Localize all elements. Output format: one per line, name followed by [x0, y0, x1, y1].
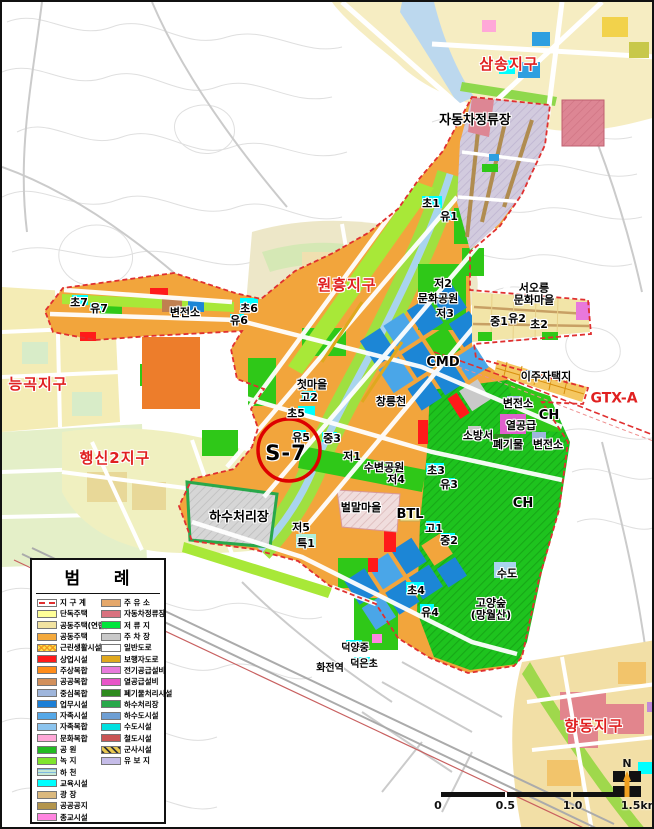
legend-item-label: 교육시설: [60, 778, 88, 789]
legend-item-label: 공 원: [60, 744, 76, 755]
legend-item-label: 하 천: [60, 767, 76, 778]
legend-item: 수도시설: [101, 721, 165, 732]
legend-swatch: [37, 802, 57, 810]
legend-item: 녹 지: [37, 755, 99, 766]
sewage-plant-area: [187, 482, 277, 547]
legend-item: 지 구 계: [37, 597, 99, 608]
legend-item-label: 주 유 소: [124, 597, 150, 608]
legend-swatch: [37, 633, 57, 641]
legend-swatch: [101, 734, 121, 742]
legend-item-label: 상업시설: [60, 654, 88, 665]
legend-item-label: 공공공지: [60, 800, 88, 811]
legend-item: 주 차 장: [101, 631, 165, 642]
legend-swatch: [101, 655, 121, 663]
legend-item-label: 주 차 장: [124, 631, 150, 642]
legend-column-left: 지 구 계단독주택공동주택(연립)공동주택근린생활시설상업시설주상복합공공복합중…: [37, 597, 99, 823]
legend-item-label: 광 장: [60, 789, 76, 800]
legend-swatch: [101, 746, 121, 754]
legend-item-label: 열공급설비: [124, 676, 159, 687]
legend-item-label: 일반도로: [124, 642, 152, 653]
legend-item: 보행자도로: [101, 653, 165, 664]
legend-swatch: [101, 700, 121, 708]
legend-item: 자족복합: [37, 721, 99, 732]
legend-item: 자동차정류장: [101, 608, 165, 619]
legend-item: 폐기물처리시설: [101, 687, 165, 698]
legend-swatch: [101, 757, 121, 765]
legend-swatch: [37, 700, 57, 708]
legend-title: 범 례: [32, 560, 164, 589]
legend-swatch: [101, 666, 121, 674]
legend-item-label: 유 보 지: [124, 755, 150, 766]
legend-item-label: 보행자도로: [124, 654, 159, 665]
legend-item: 철도시설: [101, 733, 165, 744]
legend-item-label: 하수처리장: [124, 699, 159, 710]
legend-item: 공동주택: [37, 631, 99, 642]
legend-item-label: 지 구 계: [60, 597, 86, 608]
plan-map-figure: 삼송지구원흥지구능곡지구행신2지구향동지구GTX-A자동차정류장CMD하수처리장…: [0, 0, 654, 829]
scale-tick-label: 0: [434, 799, 442, 812]
legend-item-label: 저 류 지: [124, 620, 150, 631]
legend-item-label: 단독주택: [60, 608, 88, 619]
legend-item: 일반도로: [101, 642, 165, 653]
legend-item: 공공공지: [37, 800, 99, 811]
scale-tick-label: 1.0: [563, 799, 583, 812]
legend-item: 근린생활시설: [37, 642, 99, 653]
legend-item: 광 장: [37, 789, 99, 800]
legend-item: 하수도시설: [101, 710, 165, 721]
legend-item-label: 군사시설: [124, 744, 152, 755]
legend-swatch: [101, 678, 121, 686]
legend-swatch: [101, 712, 121, 720]
waste-facility-block: [494, 434, 510, 448]
legend-item: 업무시설: [37, 699, 99, 710]
legend-column-right: 주 유 소자동차정류장저 류 지주 차 장일반도로보행자도로전기공급설비열공급설…: [101, 597, 165, 823]
legend-item: 주상복합: [37, 665, 99, 676]
north-label: N: [610, 757, 644, 770]
legend-item-label: 문화복합: [60, 733, 88, 744]
legend-swatch: [101, 723, 121, 731]
legend-swatch: [37, 712, 57, 720]
legend-swatch: [101, 621, 121, 629]
legend-item: 종교시설: [37, 812, 99, 823]
legend-item-label: 주상복합: [60, 665, 88, 676]
legend-item: 하수처리장: [101, 699, 165, 710]
legend-item: 교육시설: [37, 778, 99, 789]
legend-swatch: [37, 768, 57, 776]
legend-swatch: [37, 621, 57, 629]
legend-swatch: [37, 723, 57, 731]
legend-item: 저 류 지: [101, 620, 165, 631]
legend-item: 공공복합: [37, 676, 99, 687]
legend-item: 주 유 소: [101, 597, 165, 608]
north-arrow: N: [610, 757, 644, 801]
scale-segment: [441, 792, 505, 797]
transit-terminal-area: [457, 97, 550, 250]
scale-segment: [507, 792, 571, 797]
legend-swatch: [101, 599, 121, 607]
legend-item: 상업시설: [37, 653, 99, 664]
legend-swatch: [101, 633, 121, 641]
legend-item: 군사시설: [101, 744, 165, 755]
legend-item-label: 공동주택: [60, 631, 88, 642]
legend-swatch: [101, 689, 121, 697]
scale-tick-label: 0.5: [496, 799, 516, 812]
legend-swatch: [37, 689, 57, 697]
legend-item: 공 원: [37, 744, 99, 755]
legend-item: 전기공급설비: [101, 665, 165, 676]
legend-item-label: 수도시설: [124, 721, 152, 732]
heat-supply-block: [500, 414, 526, 434]
legend-swatch: [37, 779, 57, 787]
legend-swatch: [37, 644, 57, 652]
legend-item: 문화복합: [37, 733, 99, 744]
legend-swatch: [37, 666, 57, 674]
legend-item: 단독주택: [37, 608, 99, 619]
legend-swatch: [37, 655, 57, 663]
legend-item-label: 하수도시설: [124, 710, 159, 721]
legend-item-label: 업무시설: [60, 699, 88, 710]
legend-item-label: 중심복합: [60, 688, 88, 699]
legend-swatch: [37, 678, 57, 686]
scale-bar-segments: [441, 792, 637, 797]
legend-swatch: [37, 757, 57, 765]
legend: 범 례 지 구 계단독주택공동주택(연립)공동주택근린생활시설상업시설주상복합공…: [30, 558, 166, 824]
legend-item-label: 자족시설: [60, 710, 88, 721]
legend-swatch: [101, 644, 121, 652]
legend-item-label: 종교시설: [60, 812, 88, 823]
legend-item-label: 철도시설: [124, 733, 152, 744]
legend-item: 유 보 지: [101, 755, 165, 766]
legend-item-label: 자족복합: [60, 721, 88, 732]
legend-swatch: [37, 746, 57, 754]
legend-swatch: [101, 610, 121, 618]
legend-item: 자족시설: [37, 710, 99, 721]
legend-item-label: 전기공급설비: [124, 665, 165, 676]
legend-item-label: 근린생활시설: [60, 642, 101, 653]
legend-swatch: [37, 791, 57, 799]
legend-item-label: 폐기물처리시설: [124, 688, 172, 699]
legend-item: 공동주택(연립): [37, 620, 99, 631]
north-arrow-icon: [613, 771, 641, 797]
legend-swatch: [37, 599, 57, 607]
legend-item-label: 자동차정류장: [124, 608, 165, 619]
legend-item-label: 공공복합: [60, 676, 88, 687]
legend-item: 열공급설비: [101, 676, 165, 687]
legend-item: 중심복합: [37, 687, 99, 698]
legend-item-label: 녹 지: [60, 755, 76, 766]
scale-bar-ticks: 00.51.01.5km: [438, 799, 640, 813]
legend-swatch: [37, 813, 57, 821]
legend-divider: [36, 593, 160, 594]
mixed-use-block: [142, 337, 200, 409]
legend-item: 하 천: [37, 766, 99, 777]
beolmal-village-area: [337, 490, 400, 532]
legend-swatch: [37, 734, 57, 742]
legend-swatch: [37, 610, 57, 618]
